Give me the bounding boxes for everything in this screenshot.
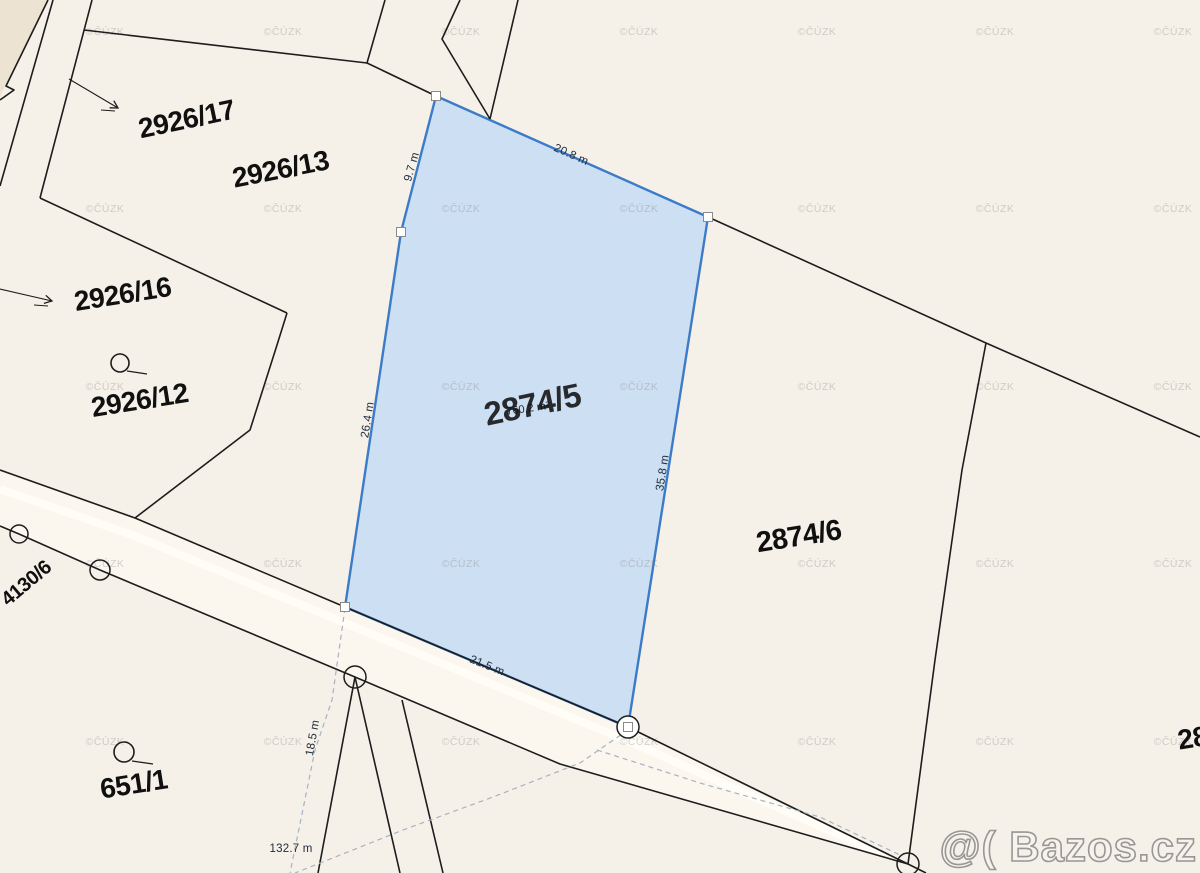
boundary-line-boundary-2926-13-north [84, 30, 367, 63]
cuzk-watermark: ©ČÚZK [620, 380, 659, 393]
parcel-label-4130-6: 4130/6 [0, 556, 56, 610]
boundary-line-top-boundary-c [490, 0, 518, 119]
cuzk-watermark: ©ČÚZK [264, 735, 303, 748]
dimension-label-132-7-m: 132.7 m [270, 843, 313, 855]
boundary-line-boundary-2926-12-east [135, 313, 287, 518]
cuzk-watermark: ©ČÚZK [442, 735, 481, 748]
vertex-marker [432, 92, 441, 101]
cuzk-watermark: ©ČÚZK [86, 735, 125, 748]
cuzk-watermark: ©ČÚZK [264, 380, 303, 393]
label-arrow [69, 79, 118, 108]
cuzk-watermark: ©ČÚZK [620, 557, 659, 570]
cuzk-watermark: ©ČÚZK [86, 557, 125, 570]
parcel-label-2874-6: 2874/6 [754, 514, 844, 559]
cuzk-watermark: ©ČÚZK [798, 202, 837, 215]
cadastral-map-image: ©ČÚZK©ČÚZK©ČÚZK©ČÚZK©ČÚZK©ČÚZK©ČÚZK©ČÚZK… [0, 0, 1200, 873]
cuzk-watermark: ©ČÚZK [442, 202, 481, 215]
cuzk-watermark: ©ČÚZK [1154, 557, 1193, 570]
boundary-line-boundary-to-parcel-corner [367, 63, 436, 96]
cuzk-watermark: ©ČÚZK [442, 380, 481, 393]
cuzk-watermark: ©ČÚZK [976, 735, 1015, 748]
cuzk-watermark: ©ČÚZK [264, 25, 303, 38]
cuzk-watermark: ©ČÚZK [1154, 202, 1193, 215]
cuzk-watermark: ©ČÚZK [264, 202, 303, 215]
parcel-label-2926-17: 2926/17 [136, 94, 238, 145]
cuzk-watermark: ©ČÚZK [976, 380, 1015, 393]
cuzk-watermark: ©ČÚZK [798, 380, 837, 393]
cuzk-watermark: ©ČÚZK [1154, 380, 1193, 393]
cuzk-watermark: ©ČÚZK [620, 25, 659, 38]
boundary-line-branch-line-west [318, 677, 355, 873]
vertex-marker [704, 213, 713, 222]
label-arrow-tick [101, 110, 115, 111]
cuzk-watermark: ©ČÚZK [264, 557, 303, 570]
boundary-line-branch-line-outer [402, 700, 443, 873]
landmark-symbol-tail [132, 761, 153, 764]
label-arrow-tick [34, 305, 48, 306]
boundary-line-branch-line-east [355, 677, 400, 873]
parcel-label-28: 28 [1175, 720, 1200, 755]
cuzk-watermark: ©ČÚZK [976, 557, 1015, 570]
cuzk-watermark: ©ČÚZK [86, 202, 125, 215]
parcel-label-2926-16: 2926/16 [72, 271, 173, 317]
vertex-marker [397, 228, 406, 237]
label-arrow [0, 289, 52, 301]
landmark-symbol-circle [111, 354, 129, 372]
vertex-marker [624, 723, 633, 732]
cuzk-watermark: ©ČÚZK [442, 557, 481, 570]
dimension-label-18-5-m: 18.5 m [304, 719, 322, 757]
boundary-line-boundary-2874-6-east [908, 343, 986, 864]
cuzk-watermark: ©ČÚZK [798, 557, 837, 570]
vertex-marker [341, 603, 350, 612]
cadastral-map-svg: ©ČÚZK©ČÚZK©ČÚZK©ČÚZK©ČÚZK©ČÚZK©ČÚZK©ČÚZK… [0, 0, 1200, 873]
boundary-line-top-boundary-a [367, 0, 385, 63]
landmark-symbol-tail [127, 371, 147, 374]
parcel-label-2926-13: 2926/13 [230, 144, 332, 193]
cuzk-watermark: ©ČÚZK [620, 202, 659, 215]
cuzk-watermark: ©ČÚZK [798, 735, 837, 748]
cuzk-watermark: ©ČÚZK [976, 25, 1015, 38]
bazos-watermark: @( Bazos.cz [940, 823, 1197, 870]
cuzk-watermark: ©ČÚZK [798, 25, 837, 38]
parcel-label-651-1: 651/1 [98, 763, 170, 804]
cuzk-watermark: ©ČÚZK [1154, 25, 1193, 38]
cuzk-watermark: ©ČÚZK [976, 202, 1015, 215]
boundary-line-boundary-east [708, 217, 1200, 437]
